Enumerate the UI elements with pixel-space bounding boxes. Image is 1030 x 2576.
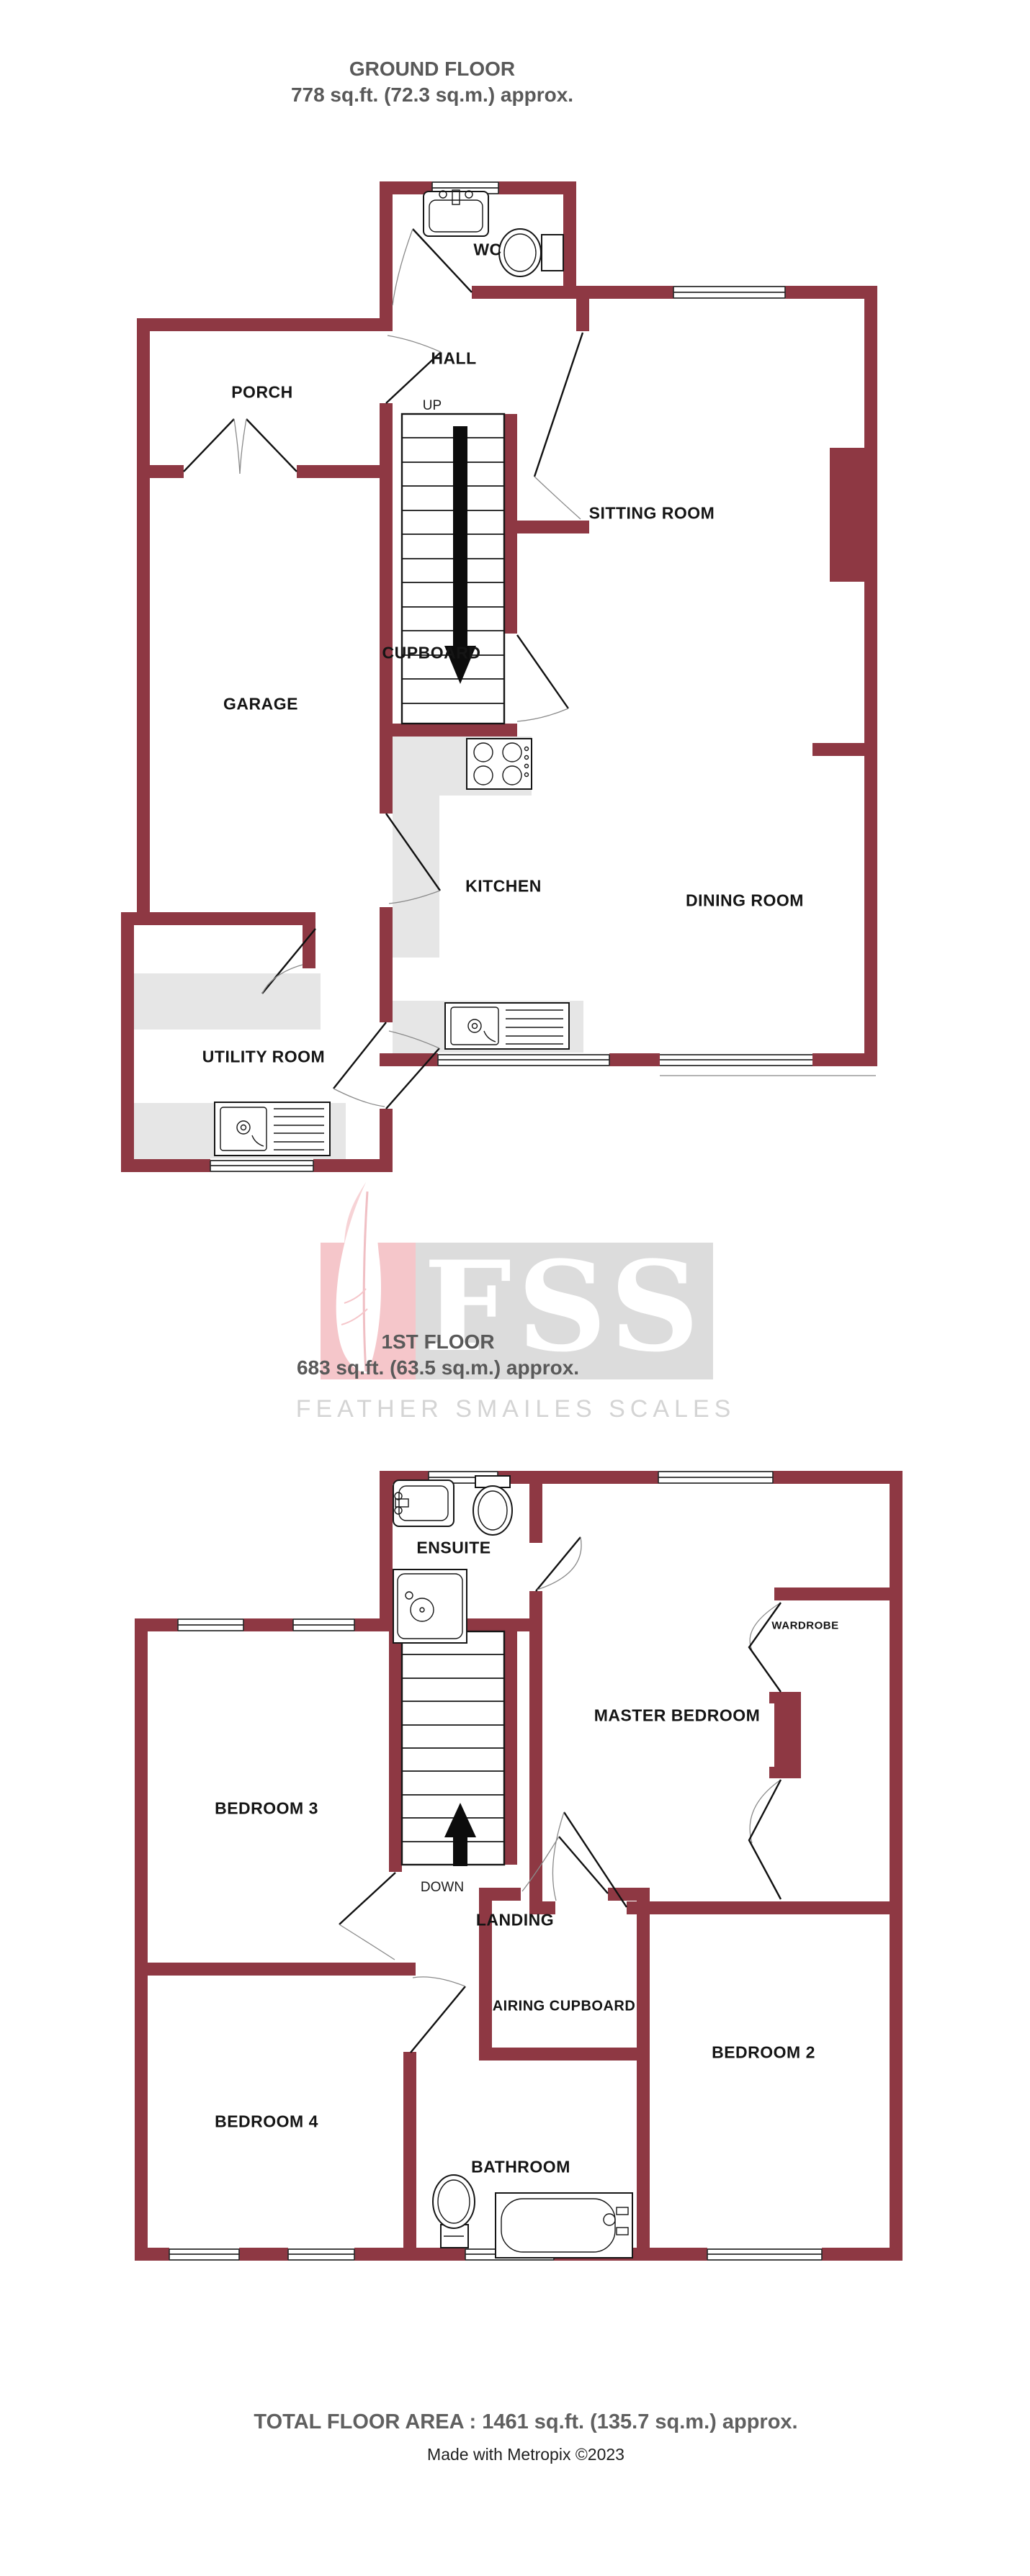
room-label-ensuite: ENSUITE (416, 1539, 491, 1558)
room-label-bedroom-4: BEDROOM 4 (215, 2112, 318, 2132)
room-label-utility-room: UTILITY ROOM (202, 1048, 325, 1067)
window (293, 1618, 354, 1632)
first-floor-plan (135, 1470, 903, 2261)
stair-label-down: DOWN (421, 1880, 464, 1896)
utility-sink-icon (215, 1102, 330, 1156)
room-label-wardrobe: WARDROBE (771, 1620, 838, 1632)
wc-sink-icon (424, 190, 488, 236)
room-label-master-bedroom: MASTER BEDROOM (594, 1706, 761, 1726)
bathtub-icon (496, 2193, 632, 2258)
room-label-landing: LANDING (476, 1911, 554, 1930)
stair-label-up: UP (423, 398, 442, 414)
room-label-airing-cupboard: AIRING CUPBOARD (493, 1999, 636, 2015)
room-label-garage: GARAGE (223, 695, 298, 714)
window (288, 2247, 354, 2261)
room-label-sitting-room: SITTING ROOM (589, 504, 715, 523)
room-label-dining-room: DINING ROOM (686, 891, 804, 911)
ground-floor-title: GROUND FLOOR 778 sq.ft. (72.3 sq.m.) app… (291, 56, 573, 108)
shower-icon (393, 1570, 467, 1643)
first-floor-area: 683 sq.ft. (63.5 sq.m.) approx. (297, 1355, 579, 1381)
window (658, 1470, 773, 1485)
ground-floor-title-line: GROUND FLOOR (291, 56, 573, 82)
first-floor-title-line: 1ST FLOOR (297, 1329, 579, 1355)
room-label-bedroom-3: BEDROOM 3 (215, 1799, 318, 1819)
ground-floor-plan (121, 181, 877, 1173)
room-label-kitchen: KITCHEN (465, 877, 542, 896)
room-label-cupboard: CUPBOARD (382, 644, 481, 663)
window (673, 285, 785, 300)
staircase-first (402, 1631, 504, 1866)
window (178, 1618, 243, 1632)
window (438, 1053, 609, 1067)
total-floor-area: TOTAL FLOOR AREA : 1461 sq.ft. (135.7 sq… (254, 2410, 797, 2434)
ensuite-sink-icon (393, 1480, 454, 1526)
first-floor-title: 1ST FLOOR 683 sq.ft. (63.5 sq.m.) approx… (297, 1329, 579, 1381)
floorplan-drawing (0, 0, 1030, 2576)
window (707, 2247, 822, 2261)
ground-counters (134, 737, 583, 1159)
floorplan-canvas: FSS FEATHER SMAILES SCALES (0, 0, 1030, 2576)
bathroom-toilet-icon (433, 2175, 475, 2248)
window (210, 1158, 313, 1173)
room-label-porch: PORCH (231, 383, 293, 402)
ensuite-toilet-icon (473, 1476, 512, 1535)
window (169, 2247, 239, 2261)
room-label-bathroom: BATHROOM (471, 2158, 570, 2177)
first-walls (135, 1471, 903, 2261)
hob-icon (467, 739, 532, 789)
ground-floor-area: 778 sq.ft. (72.3 sq.m.) approx. (291, 82, 573, 108)
staircase-ground (402, 414, 504, 724)
room-label-bedroom-2: BEDROOM 2 (712, 2043, 815, 2063)
first-windows (169, 1470, 822, 2261)
room-label-hall: HALL (431, 349, 476, 369)
room-label-wc: WC (473, 240, 501, 260)
wc-toilet-icon (499, 229, 563, 276)
metropix-credit: Made with Metropix ©2023 (427, 2445, 624, 2464)
kitchen-sink-icon (445, 1003, 569, 1049)
